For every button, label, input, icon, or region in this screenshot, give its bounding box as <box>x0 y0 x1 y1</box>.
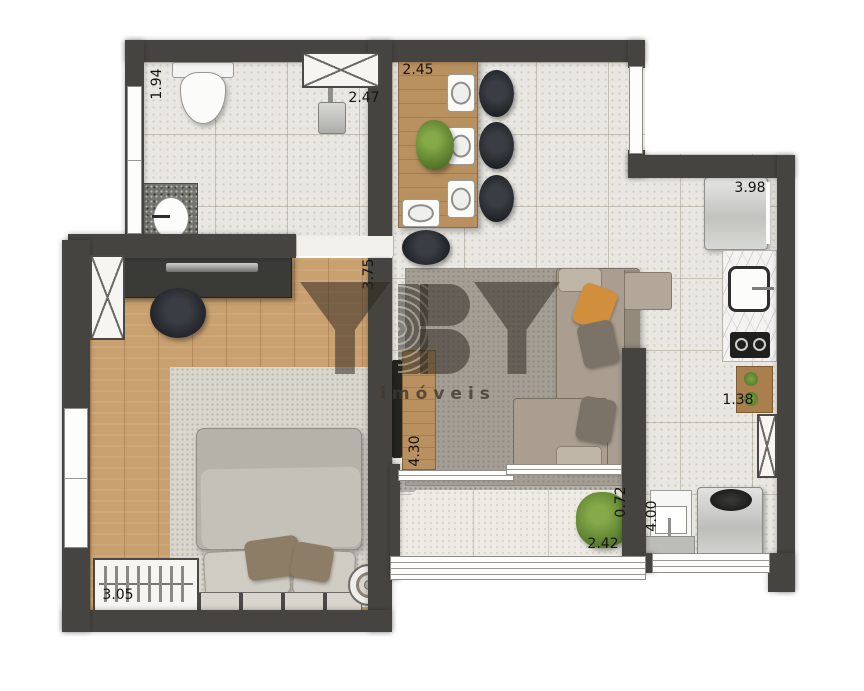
shower-head <box>318 102 346 134</box>
place-setting <box>402 199 440 227</box>
dimension-label: 0.72 <box>613 480 629 524</box>
bathroom-sink-basin <box>153 197 189 239</box>
dining-chair <box>402 230 450 265</box>
stove-burner <box>753 338 766 351</box>
laundry-window <box>652 553 770 573</box>
dining-window <box>629 66 643 154</box>
dimension-label: 3.75 <box>361 252 377 296</box>
dimension-label: 4.00 <box>644 494 660 538</box>
dimension-label: 2.47 <box>342 90 386 106</box>
tv-screen <box>392 360 402 458</box>
place-setting <box>447 180 475 218</box>
laptop <box>166 263 258 272</box>
closet-bedroom <box>90 255 125 340</box>
table-plant <box>416 120 454 170</box>
shaft-kitchen <box>757 414 777 478</box>
balcony-sliding-door-panel <box>506 464 622 475</box>
floor-plan: 1.94 2.47 2.45 3.98 3.75 1.38 4.30 0.72 … <box>0 0 864 691</box>
wall-dining-right-top <box>628 40 645 68</box>
exterior-area <box>645 40 864 154</box>
shaft-bathroom <box>302 52 380 88</box>
side-table <box>624 272 672 310</box>
bathroom-faucet <box>152 215 170 218</box>
desk-chair <box>150 288 206 338</box>
dimension-label: 1.94 <box>149 62 165 106</box>
wall-kitchen-top <box>628 155 795 178</box>
dimension-label: 4.30 <box>407 429 423 473</box>
wall-bedroom-bottom <box>62 610 392 632</box>
dining-chair <box>479 175 514 222</box>
washer-lid-opening <box>710 489 752 511</box>
dining-chair <box>479 70 514 117</box>
dimension-label: 2.42 <box>581 536 625 552</box>
wall-bedroom-right <box>368 258 392 632</box>
bedroom-window <box>64 408 88 548</box>
gray-pillow <box>574 395 617 445</box>
balcony-railing <box>390 556 646 580</box>
dimension-label: 3.98 <box>728 180 772 196</box>
dining-chair <box>479 122 514 169</box>
dimension-label: 3.05 <box>96 587 140 603</box>
counter-plant-pot <box>744 372 758 386</box>
place-setting <box>447 74 475 112</box>
dimension-label: 2.45 <box>396 62 440 78</box>
accent-pillow <box>289 541 335 583</box>
wall-corner-bottom-right <box>768 553 795 592</box>
kitchen-faucet <box>752 287 774 290</box>
dimension-label: 1.38 <box>716 392 760 408</box>
wall-laundry-balcony <box>622 348 646 573</box>
door-opening-bedroom-bathroom <box>296 236 394 256</box>
bathroom-window <box>127 86 142 234</box>
wall-right <box>777 155 795 592</box>
stove-burner <box>735 338 748 351</box>
